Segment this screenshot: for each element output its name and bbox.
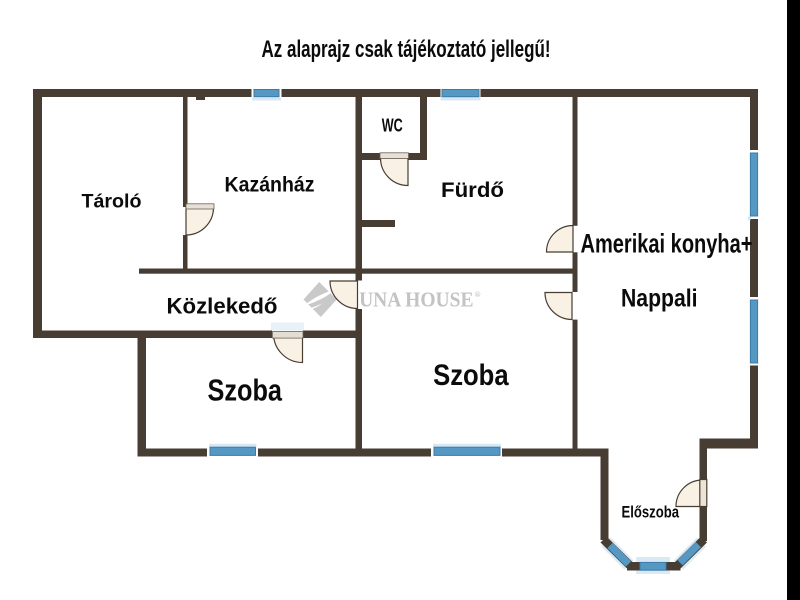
- svg-text:Előszoba: Előszoba: [622, 504, 680, 522]
- svg-text:®: ®: [475, 290, 481, 299]
- svg-text:WC: WC: [382, 115, 403, 136]
- svg-text:Tároló: Tároló: [82, 191, 142, 213]
- svg-text:Amerikai konyha+: Amerikai konyha+: [581, 229, 753, 259]
- svg-text:Szoba: Szoba: [433, 360, 509, 392]
- svg-text:Nappali: Nappali: [621, 285, 698, 312]
- svg-text:DUNA HOUSE: DUNA HOUSE: [345, 288, 474, 312]
- svg-text:Fürdő: Fürdő: [441, 178, 504, 202]
- svg-text:Szoba: Szoba: [208, 375, 283, 408]
- svg-text:Közlekedő: Közlekedő: [167, 294, 278, 319]
- svg-text:Kazánház: Kazánház: [225, 173, 315, 197]
- svg-text:Az alaprajz csak tájékoztató j: Az alaprajz csak tájékoztató jellegű!: [262, 37, 551, 63]
